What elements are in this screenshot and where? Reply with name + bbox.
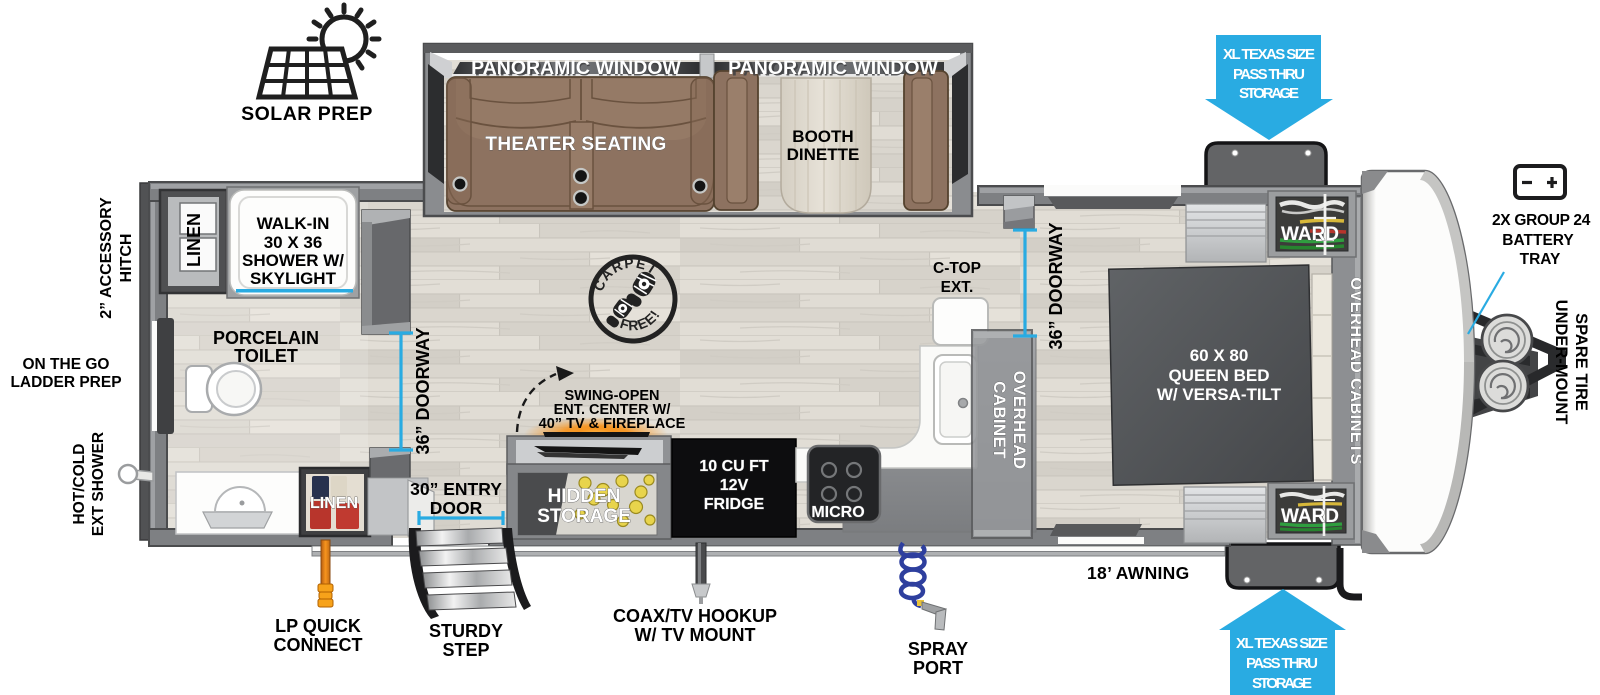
svg-text:12V: 12V (720, 477, 749, 494)
svg-text:BOOTH: BOOTH (792, 127, 853, 146)
svg-text:60 X 80: 60 X 80 (1190, 346, 1249, 365)
svg-text:C-TOP: C-TOP (933, 260, 981, 277)
svg-text:DINETTE: DINETTE (787, 145, 860, 164)
svg-text:EXT SHOWER: EXT SHOWER (90, 432, 107, 536)
svg-text:CABINET: CABINET (990, 381, 1009, 459)
svg-text:40” TV & FIREPLACE: 40” TV & FIREPLACE (539, 416, 686, 432)
svg-text:OVERHEAD: OVERHEAD (1010, 371, 1029, 470)
svg-text:SHOWER W/: SHOWER W/ (242, 251, 344, 270)
svg-text:SOLAR PREP: SOLAR PREP (241, 103, 373, 125)
svg-text:WARD: WARD (1281, 506, 1339, 527)
svg-text:W/ TV MOUNT: W/ TV MOUNT (635, 625, 756, 645)
svg-text:2” ACCESSORY: 2” ACCESSORY (98, 197, 115, 319)
svg-text:PORT: PORT (913, 658, 963, 678)
svg-text:LP QUICK: LP QUICK (275, 616, 361, 636)
svg-text:30” ENTRY: 30” ENTRY (410, 479, 502, 499)
svg-text:TOILET: TOILET (234, 346, 298, 366)
svg-text:PANORAMIC WINDOW: PANORAMIC WINDOW (471, 57, 681, 79)
svg-text:XL TEXAS SIZE: XL TEXAS SIZE (1223, 46, 1315, 63)
svg-text:W/ VERSA-TILT: W/ VERSA-TILT (1157, 385, 1282, 404)
svg-text:PORCELAIN: PORCELAIN (213, 328, 319, 348)
svg-text:PANORAMIC WINDOW: PANORAMIC WINDOW (728, 57, 938, 79)
svg-text:DOOR: DOOR (430, 498, 483, 518)
svg-text:BATTERY: BATTERY (1502, 232, 1574, 249)
svg-text:STURDY: STURDY (429, 621, 503, 641)
svg-text:36” DOORWAY: 36” DOORWAY (413, 327, 433, 454)
svg-text:FRIDGE: FRIDGE (704, 496, 765, 513)
svg-text:36” DOORWAY: 36” DOORWAY (1046, 222, 1066, 349)
svg-text:XL TEXAS SIZE: XL TEXAS SIZE (1236, 635, 1328, 652)
svg-text:CONNECT: CONNECT (274, 635, 363, 655)
svg-text:TRAY: TRAY (1520, 251, 1561, 268)
svg-text:SKYLIGHT: SKYLIGHT (250, 269, 337, 288)
svg-text:STEP: STEP (442, 640, 489, 660)
svg-text:COAX/TV HOOKUP: COAX/TV HOOKUP (613, 606, 777, 626)
svg-text:LINEN: LINEN (310, 495, 358, 512)
svg-text:WALK-IN: WALK-IN (257, 214, 330, 233)
svg-text:2X GROUP 24: 2X GROUP 24 (1492, 212, 1591, 229)
svg-text:ON THE GO: ON THE GO (23, 356, 110, 373)
svg-text:PASS THRU: PASS THRU (1246, 655, 1318, 672)
svg-text:LADDER PREP: LADDER PREP (10, 374, 121, 391)
svg-text:STORAGE: STORAGE (1252, 675, 1312, 692)
svg-text:SPRAY: SPRAY (908, 639, 968, 659)
svg-text:HITCH: HITCH (118, 234, 135, 283)
svg-text:10 CU FT: 10 CU FT (699, 458, 769, 475)
svg-text:QUEEN BED: QUEEN BED (1168, 366, 1269, 385)
svg-text:THEATER SEATING: THEATER SEATING (485, 134, 666, 155)
svg-text:LINEN: LINEN (184, 213, 204, 267)
svg-text:UNDER-MOUNT: UNDER-MOUNT (1552, 300, 1570, 425)
svg-text:MICRO: MICRO (811, 504, 864, 521)
svg-text:HOT/COLD: HOT/COLD (71, 444, 88, 525)
svg-text:WARD: WARD (1281, 224, 1339, 245)
svg-text:STORAGE: STORAGE (1239, 85, 1299, 102)
svg-text:HIDDEN: HIDDEN (548, 486, 621, 507)
svg-text:SPARE TIRE: SPARE TIRE (1572, 313, 1590, 411)
svg-text:30 X 36: 30 X 36 (264, 233, 323, 252)
svg-text:PASS THRU: PASS THRU (1233, 66, 1305, 83)
svg-text:EXT.: EXT. (941, 279, 974, 296)
svg-text:18’ AWNING: 18’ AWNING (1087, 563, 1190, 583)
svg-text:STORAGE: STORAGE (537, 506, 631, 527)
